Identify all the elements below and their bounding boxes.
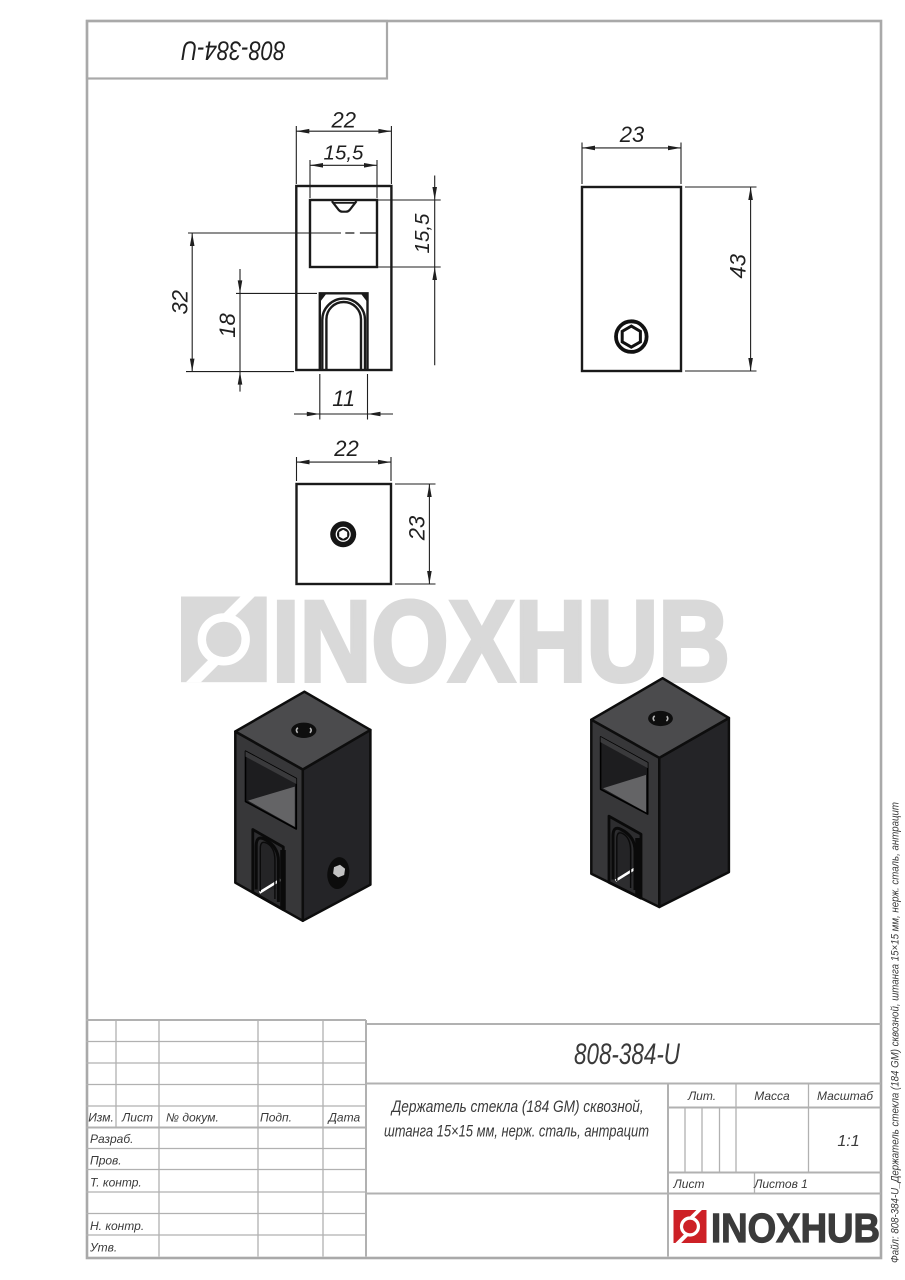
svg-text:Масштаб: Масштаб	[817, 1089, 874, 1103]
svg-text:15,5: 15,5	[411, 213, 434, 253]
svg-text:штанга 15×15 мм, нерж. сталь,: штанга 15×15 мм, нерж. сталь, антрацит	[384, 1122, 649, 1141]
svg-text:Н. контр.: Н. контр.	[90, 1219, 144, 1233]
svg-text:Изм.: Изм.	[88, 1111, 114, 1125]
svg-text:Лист: Лист	[673, 1177, 705, 1191]
svg-text:№ докум.: № докум.	[166, 1111, 219, 1125]
svg-text:808-384-U: 808-384-U	[574, 1038, 680, 1071]
svg-text:Масса: Масса	[754, 1089, 790, 1103]
svg-text:1:1: 1:1	[837, 1133, 859, 1150]
svg-text:18: 18	[215, 313, 240, 338]
svg-text:15,5: 15,5	[324, 142, 364, 165]
svg-text:Лист: Лист	[121, 1111, 153, 1125]
svg-text:43: 43	[726, 253, 751, 278]
svg-text:INOXHUB: INOXHUB	[711, 1205, 880, 1251]
svg-text:Листов 1: Листов 1	[753, 1177, 808, 1191]
svg-text:Лит.: Лит.	[687, 1089, 716, 1103]
svg-text:22: 22	[331, 108, 356, 133]
svg-text:32: 32	[168, 290, 193, 314]
svg-text:Файл: 808-384-U_Держатель стек: Файл: 808-384-U_Держатель стекла (184 GM…	[890, 802, 902, 1263]
svg-text:22: 22	[333, 436, 358, 461]
svg-text:Разраб.: Разраб.	[90, 1132, 133, 1146]
svg-text:Т. контр.: Т. контр.	[90, 1176, 142, 1190]
svg-text:Пров.: Пров.	[90, 1154, 122, 1168]
svg-text:Утв.: Утв.	[89, 1241, 117, 1255]
svg-text:Держатель стекла (184 GM) скво: Держатель стекла (184 GM) сквозной,	[390, 1097, 644, 1116]
svg-text:23: 23	[404, 515, 429, 541]
svg-text:11: 11	[332, 386, 355, 411]
svg-text:Подп.: Подп.	[260, 1111, 292, 1125]
svg-text:808-384-U: 808-384-U	[181, 36, 285, 66]
svg-text:Дата: Дата	[326, 1111, 360, 1125]
svg-text:23: 23	[619, 122, 645, 147]
